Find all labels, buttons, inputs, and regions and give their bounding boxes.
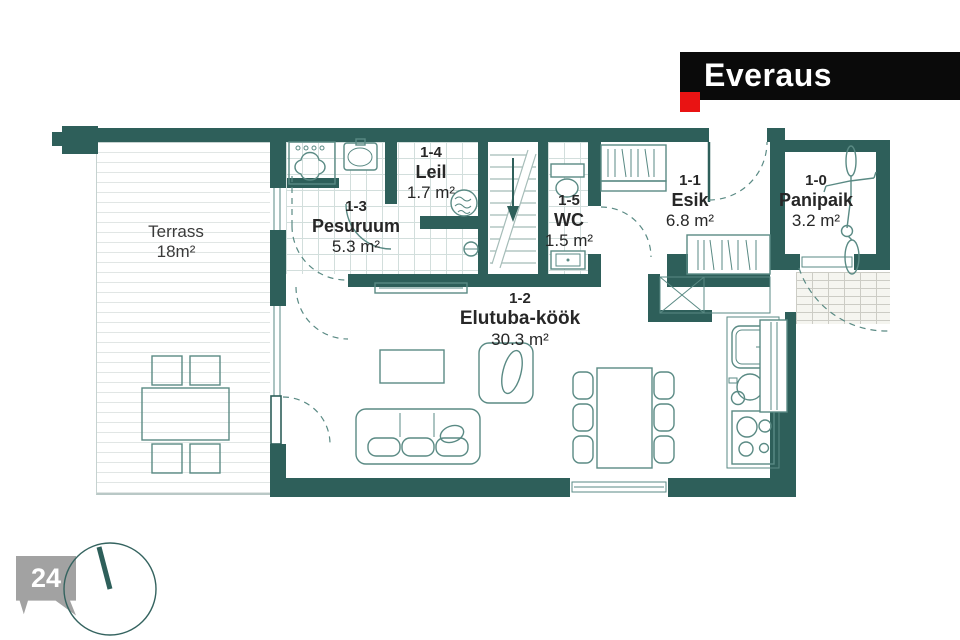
terrace-chair <box>190 444 220 473</box>
room-code: 1-4 <box>407 144 455 162</box>
room-label-panipaik: 1-0 Panipaik 3.2 m² <box>779 172 853 231</box>
room-name: Elutuba-köök <box>460 308 580 330</box>
room-name: WC <box>545 210 593 231</box>
room-area: 1.7 m² <box>407 183 455 203</box>
room-label-terrass: Terrass 18m² <box>148 222 204 262</box>
terrace-door-swing <box>283 397 330 444</box>
room-code: 1-3 <box>312 198 400 216</box>
room-area: 18m² <box>148 242 204 262</box>
room-name: Panipaik <box>779 190 853 211</box>
room-code: 1-5 <box>545 192 593 210</box>
coffee-table <box>380 350 444 383</box>
room-name: Esik <box>666 190 714 211</box>
dining-table <box>597 368 652 468</box>
dining-chair <box>654 372 674 399</box>
entrance-door-swing <box>709 142 767 200</box>
room-code: 1-2 <box>460 290 580 308</box>
dining-chair <box>654 404 674 431</box>
brand-name: Everaus <box>704 57 832 94</box>
entry-wardrobe <box>601 145 666 181</box>
dining-chair <box>573 436 593 463</box>
wc-door-swing <box>601 207 651 257</box>
outdoor-door-swing <box>799 268 888 331</box>
dining-chair <box>573 404 593 431</box>
armchair <box>479 343 533 403</box>
logo-red-square <box>680 92 700 112</box>
terrace-door-leaf <box>271 396 281 444</box>
room-label-pesuruum: 1-3 Pesuruum 5.3 m² <box>312 198 400 257</box>
room-label-esik: 1-1 Esik 6.8 m² <box>666 172 714 231</box>
terrace-chair <box>152 356 182 385</box>
stairs <box>490 150 536 268</box>
room-name: Leil <box>407 162 455 183</box>
room-label-leil: 1-4 Leil 1.7 m² <box>407 144 455 203</box>
terrace-chair <box>190 356 220 385</box>
room-area: 1.5 m² <box>545 231 593 251</box>
room-name: Terrass <box>148 222 204 242</box>
dining-chair <box>573 372 593 399</box>
bathroom-door-swing <box>296 287 348 339</box>
room-code: 1-0 <box>779 172 853 190</box>
room-label-elutuba-kook: 1-2 Elutuba-köök 30.3 m² <box>460 290 580 350</box>
terrace-table <box>142 388 229 440</box>
room-code: 1-1 <box>666 172 714 190</box>
terrace-chair <box>152 444 182 473</box>
fridge <box>760 320 787 412</box>
toilet <box>551 164 584 177</box>
room-area: 30.3 m² <box>460 330 580 350</box>
everaus-logo: Everaus <box>680 52 960 100</box>
clock-icon <box>60 540 160 640</box>
dining-chair <box>654 436 674 463</box>
room-name: Pesuruum <box>312 216 400 237</box>
room-label-wc: 1-5 WC 1.5 m² <box>545 192 593 251</box>
terrace-furniture <box>142 356 229 473</box>
room-area: 3.2 m² <box>779 211 853 231</box>
room-area: 5.3 m² <box>312 237 400 257</box>
room-area: 6.8 m² <box>666 211 714 231</box>
